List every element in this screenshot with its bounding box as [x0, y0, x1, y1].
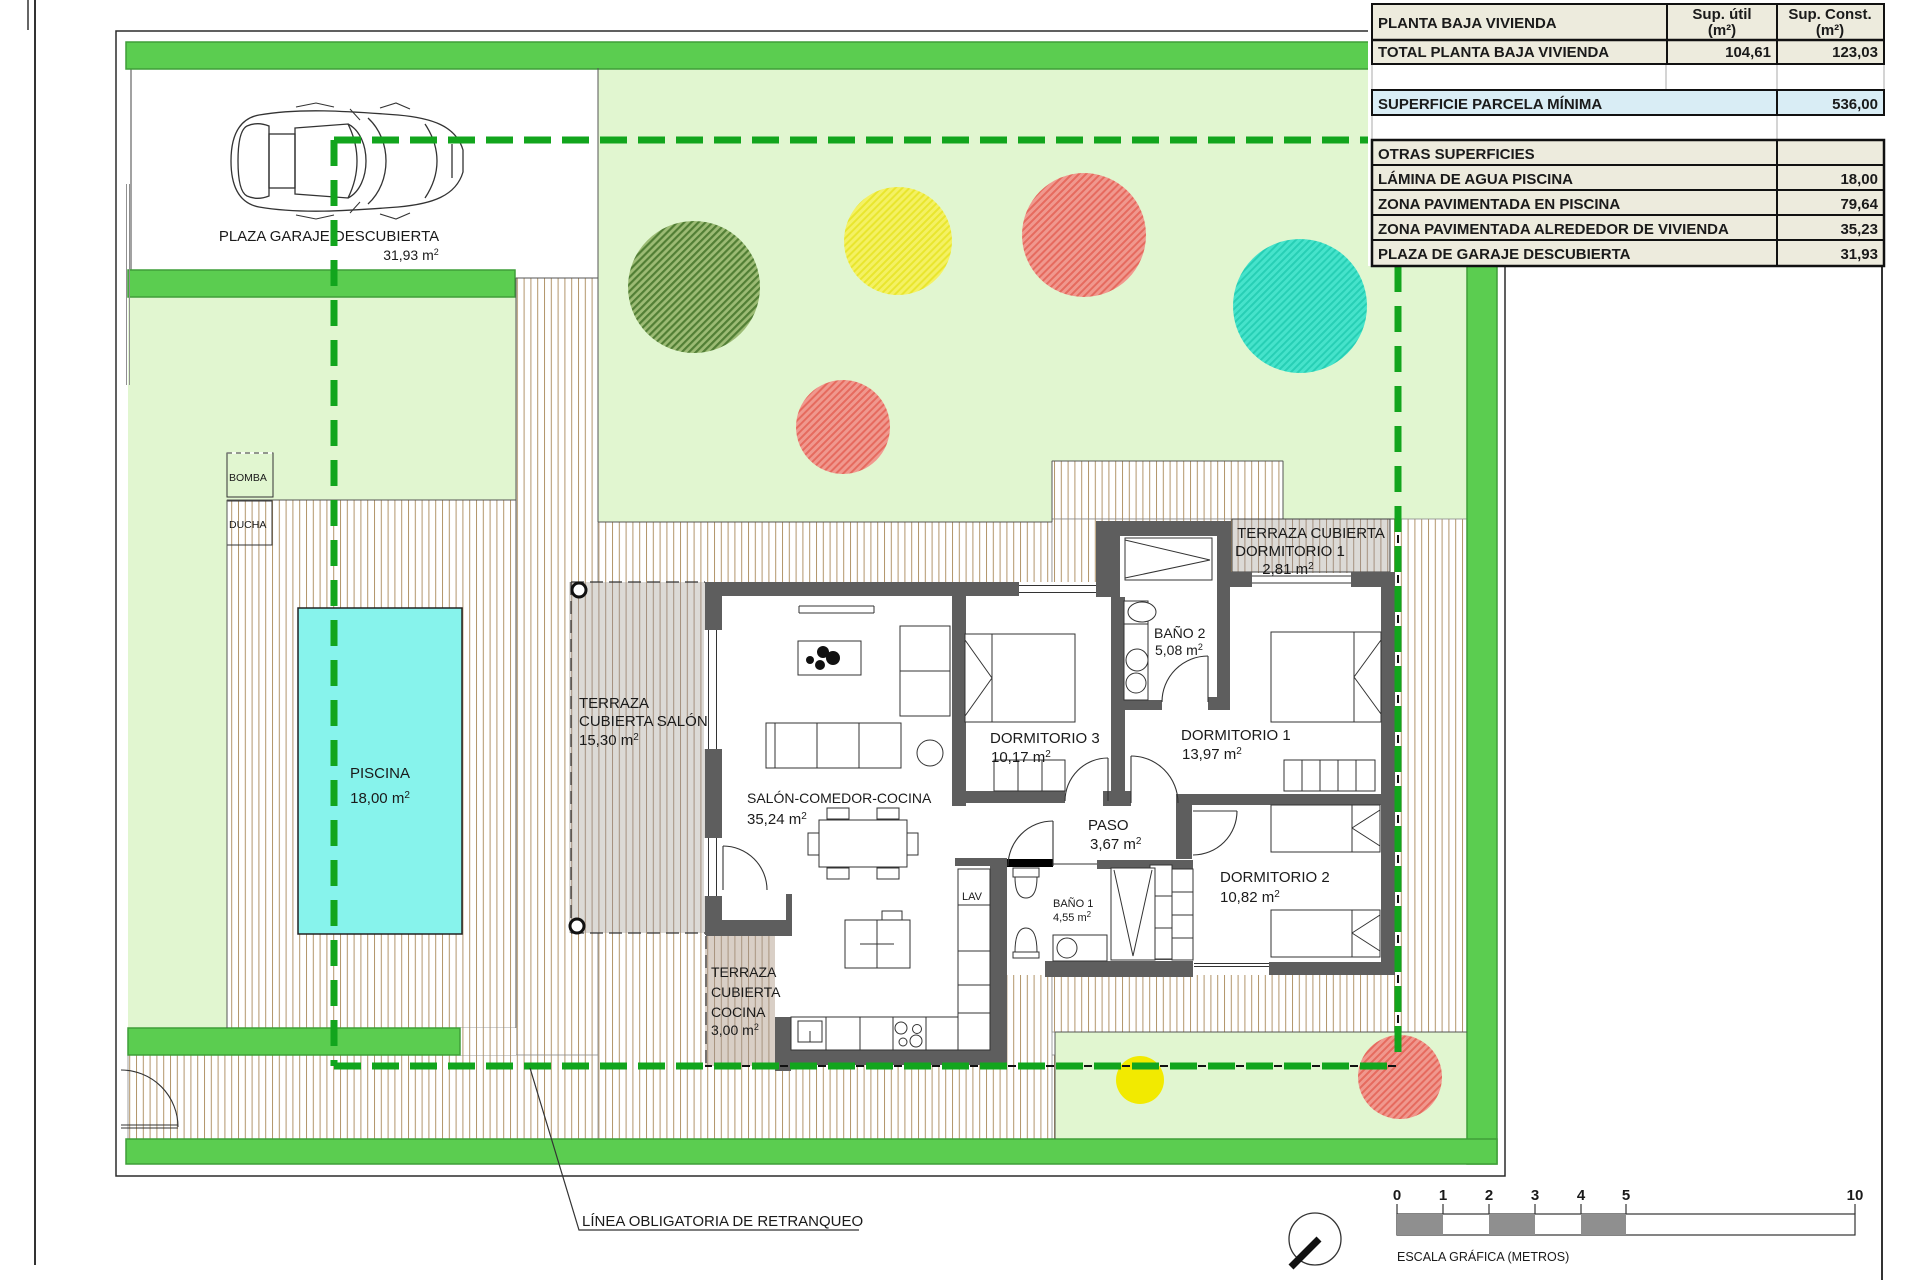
svg-text:10: 10: [1847, 1187, 1864, 1204]
svg-text:TOTAL PLANTA BAJA VIVIENDA: TOTAL PLANTA BAJA VIVIENDA: [1378, 44, 1609, 61]
svg-text:536,00: 536,00: [1832, 96, 1878, 113]
svg-text:5: 5: [1622, 1187, 1630, 1204]
svg-text:BAÑO 1: BAÑO 1: [1053, 897, 1093, 910]
svg-text:PISCINA: PISCINA: [350, 765, 410, 782]
svg-text:15,30 m2: 15,30 m2: [579, 732, 639, 749]
svg-text:CUBIERTA: CUBIERTA: [711, 984, 781, 1000]
svg-text:CUBIERTA SALÓN: CUBIERTA SALÓN: [579, 713, 708, 730]
svg-text:79,64: 79,64: [1840, 196, 1878, 213]
svg-text:ESCALA GRÁFICA (METROS): ESCALA GRÁFICA (METROS): [1397, 1249, 1569, 1264]
svg-text:LÍNEA OBLIGATORIA DE RETRANQUE: LÍNEA OBLIGATORIA DE RETRANQUEO: [582, 1213, 863, 1230]
svg-text:1: 1: [1439, 1187, 1447, 1204]
svg-text:PLAZA GARAJE DESCUBIERTA: PLAZA GARAJE DESCUBIERTA: [219, 228, 439, 245]
svg-text:DORMITORIO 3: DORMITORIO 3: [990, 730, 1100, 747]
svg-text:31,93: 31,93: [1840, 246, 1878, 263]
svg-text:10,17 m2: 10,17 m2: [991, 749, 1051, 766]
svg-text:ZONA PAVIMENTADA EN PISCINA: ZONA PAVIMENTADA EN PISCINA: [1378, 196, 1620, 213]
svg-text:PLANTA BAJA VIVIENDA: PLANTA BAJA VIVIENDA: [1378, 15, 1557, 32]
svg-text:3,67 m2: 3,67 m2: [1090, 836, 1142, 853]
svg-text:(m²): (m²): [1816, 22, 1844, 39]
svg-text:4: 4: [1577, 1187, 1586, 1204]
svg-text:18,00 m2: 18,00 m2: [350, 790, 410, 807]
svg-text:DORMITORIO 1: DORMITORIO 1: [1235, 543, 1345, 560]
svg-text:0: 0: [1393, 1187, 1401, 1204]
svg-text:TERRAZA: TERRAZA: [711, 964, 777, 980]
svg-text:35,24 m2: 35,24 m2: [747, 811, 807, 828]
svg-text:DORMITORIO 2: DORMITORIO 2: [1220, 869, 1330, 886]
svg-text:13,97 m2: 13,97 m2: [1182, 746, 1242, 763]
svg-text:TERRAZA CUBIERTA: TERRAZA CUBIERTA: [1237, 525, 1385, 542]
svg-text:2: 2: [1485, 1187, 1493, 1204]
svg-text:LÁMINA DE AGUA PISCINA: LÁMINA DE AGUA PISCINA: [1378, 171, 1573, 188]
svg-text:OTRAS SUPERFICIES: OTRAS SUPERFICIES: [1378, 146, 1535, 163]
svg-text:DUCHA: DUCHA: [229, 519, 266, 531]
svg-text:123,03: 123,03: [1832, 44, 1878, 61]
svg-text:PLAZA DE GARAJE DESCUBIERTA: PLAZA DE GARAJE DESCUBIERTA: [1378, 246, 1631, 263]
svg-text:Sup. Const.: Sup. Const.: [1788, 6, 1871, 23]
svg-text:LAV: LAV: [962, 891, 983, 903]
svg-text:TERRAZA: TERRAZA: [579, 695, 649, 712]
svg-text:COCINA: COCINA: [711, 1004, 766, 1020]
svg-text:BAÑO 2: BAÑO 2: [1154, 625, 1206, 641]
svg-text:3,00 m2: 3,00 m2: [711, 1022, 759, 1038]
svg-text:Sup. útil: Sup. útil: [1692, 6, 1751, 23]
svg-text:DORMITORIO 1: DORMITORIO 1: [1181, 727, 1291, 744]
svg-text:10,82 m2: 10,82 m2: [1220, 889, 1280, 906]
svg-text:BOMBA: BOMBA: [229, 472, 267, 484]
svg-text:SUPERFICIE PARCELA MÍNIMA: SUPERFICIE PARCELA MÍNIMA: [1378, 96, 1602, 113]
svg-text:PASO: PASO: [1088, 817, 1129, 834]
svg-text:18,00: 18,00: [1840, 171, 1878, 188]
svg-text:5,08 m2: 5,08 m2: [1155, 642, 1203, 658]
svg-text:(m²): (m²): [1708, 22, 1736, 39]
svg-text:ZONA PAVIMENTADA ALREDEDOR DE: ZONA PAVIMENTADA ALREDEDOR DE VIVIENDA: [1378, 221, 1729, 238]
svg-text:SALÓN-COMEDOR-COCINA: SALÓN-COMEDOR-COCINA: [747, 790, 932, 806]
svg-text:2,81 m2: 2,81 m2: [1262, 561, 1314, 578]
svg-text:31,93 m2: 31,93 m2: [383, 247, 439, 263]
svg-text:3: 3: [1531, 1187, 1539, 1204]
svg-text:4,55 m2: 4,55 m2: [1053, 910, 1092, 924]
svg-text:35,23: 35,23: [1840, 221, 1878, 238]
svg-text:104,61: 104,61: [1725, 44, 1771, 61]
